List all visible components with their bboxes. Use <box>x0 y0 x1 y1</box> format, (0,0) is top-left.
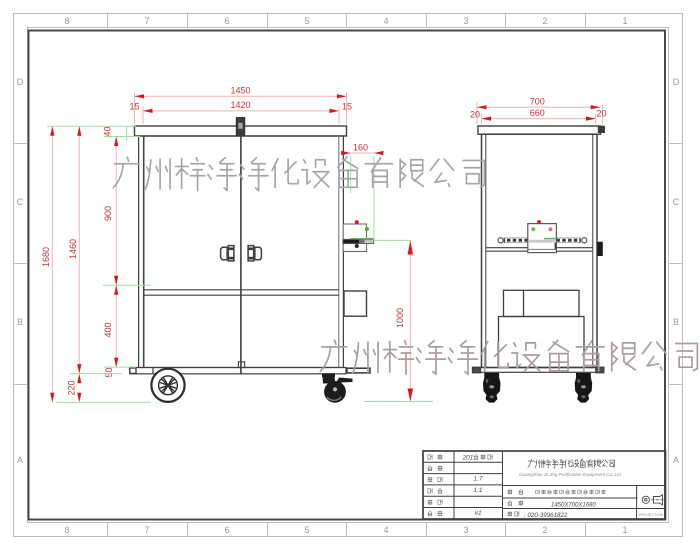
svg-text:1: 1 <box>622 16 627 26</box>
svg-text:4: 4 <box>383 16 388 26</box>
svg-text:15: 15 <box>129 102 139 112</box>
svg-text:5: 5 <box>304 16 309 26</box>
svg-text:B: B <box>17 317 23 327</box>
svg-text:: 020-39961822: : 020-39961822 <box>524 512 568 519</box>
svg-text:3: 3 <box>463 525 468 535</box>
svg-text:8: 8 <box>64 525 69 535</box>
svg-text:PROJECTION: PROJECTION <box>639 513 664 517</box>
svg-text:1680: 1680 <box>41 247 51 267</box>
svg-text:20: 20 <box>596 109 606 119</box>
svg-text:C: C <box>673 197 680 207</box>
svg-text:8: 8 <box>64 16 69 26</box>
svg-text:#1: #1 <box>474 510 482 517</box>
svg-text:7: 7 <box>144 525 149 535</box>
svg-text:40: 40 <box>103 126 113 136</box>
svg-text:50: 50 <box>104 367 114 377</box>
svg-text:2: 2 <box>542 16 547 26</box>
svg-text:4: 4 <box>383 525 388 535</box>
svg-text:1420: 1420 <box>230 100 250 110</box>
svg-text:20: 20 <box>470 110 480 120</box>
svg-text:C: C <box>17 197 24 207</box>
svg-text:1000: 1000 <box>395 308 405 328</box>
svg-text:6: 6 <box>224 525 229 535</box>
svg-text:1460: 1460 <box>68 239 78 259</box>
svg-text:1450: 1450 <box>230 86 250 96</box>
svg-text:7: 7 <box>144 16 149 26</box>
svg-text:D: D <box>17 77 24 87</box>
svg-text:220: 220 <box>67 380 77 395</box>
svg-text:A: A <box>17 455 23 465</box>
svg-text:6: 6 <box>224 16 229 26</box>
svg-text:1:1: 1:1 <box>473 487 482 494</box>
svg-text:900: 900 <box>103 206 113 221</box>
svg-text:Guangzhou Zi Jing Purification: Guangzhou Zi Jing Purification Equipment… <box>519 472 621 477</box>
svg-text:660: 660 <box>530 108 545 118</box>
svg-text:1: 1 <box>622 525 627 535</box>
svg-text:160: 160 <box>353 143 368 153</box>
svg-text:1:7: 1:7 <box>473 476 482 483</box>
svg-text:A: A <box>673 455 679 465</box>
svg-text:5: 5 <box>304 525 309 535</box>
svg-text:700: 700 <box>530 96 545 106</box>
svg-text:2: 2 <box>542 525 547 535</box>
svg-text:201: 201 <box>462 455 474 462</box>
svg-text:1450X700X1680: 1450X700X1680 <box>551 503 596 509</box>
svg-text:3: 3 <box>463 16 468 26</box>
svg-text:15: 15 <box>342 102 352 112</box>
svg-text:400: 400 <box>103 322 113 337</box>
svg-text:D: D <box>673 77 680 87</box>
svg-text:B: B <box>673 317 679 327</box>
